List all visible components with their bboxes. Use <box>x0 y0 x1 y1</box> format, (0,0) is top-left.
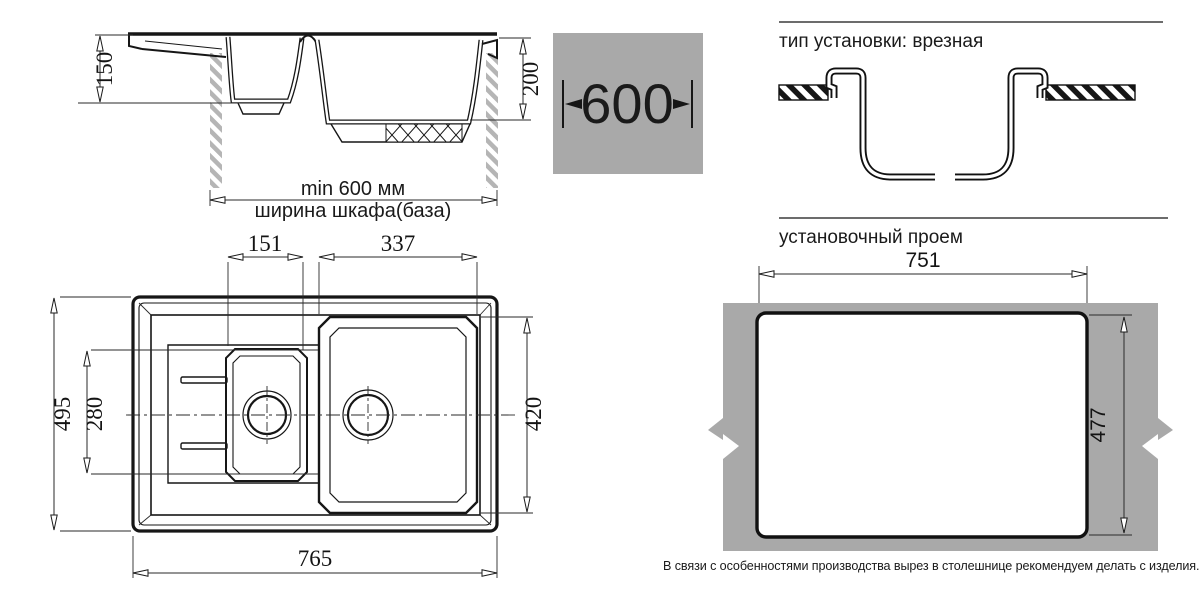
drainer-groove-bottom <box>181 443 227 449</box>
dimension-751: 751 <box>759 249 1087 310</box>
dim-495-label: 495 <box>50 397 75 432</box>
install-type-section: тип установки: врезная <box>779 22 1163 177</box>
dim-280-label: 280 <box>82 397 107 432</box>
cutout-title: установочный проем <box>779 227 963 248</box>
install-type-title: тип установки: врезная <box>779 31 983 52</box>
dim-150-label: 150 <box>92 52 117 87</box>
sink-technical-drawing: 150 200 min 600 мм ширина шкафа(база) 60… <box>0 0 1203 606</box>
bowl-bottom-crosshatch <box>386 124 462 142</box>
break-bump-left <box>708 418 723 440</box>
badge-600-value: 600 <box>580 72 673 135</box>
inset-rim-profile <box>829 71 1045 177</box>
dimension-151: 151 <box>228 231 303 350</box>
dim-151-label: 151 <box>248 231 283 256</box>
production-note: В связи с особенностями производства выр… <box>663 559 1199 573</box>
countertop-left-hatch <box>779 85 828 100</box>
break-bump-right <box>1158 418 1173 440</box>
cabinet-600-badge: 600 <box>553 33 703 174</box>
dimension-765: 765 <box>133 536 497 578</box>
sink-outer-edge <box>133 297 497 531</box>
dim-477-label: 477 <box>1087 407 1110 442</box>
top-view: 151 337 495 280 420 <box>50 231 546 578</box>
dimension-337: 337 <box>319 231 477 314</box>
dim-420-label: 420 <box>521 397 546 432</box>
dimension-280: 280 <box>82 350 318 474</box>
dim-765-label: 765 <box>298 546 333 571</box>
dim-200-label: 200 <box>518 62 543 97</box>
cabinet-wall-right-hatch <box>486 53 498 188</box>
dimension-cabinet-width: min 600 мм ширина шкафа(база) <box>210 178 497 222</box>
cross-section-view: 150 200 min 600 мм ширина шкафа(база) <box>78 34 543 222</box>
countertop-right-hatch <box>1046 85 1135 100</box>
dim-min600-label: min 600 мм <box>301 178 405 200</box>
dim-751-label: 751 <box>905 249 940 272</box>
cutout-opening <box>757 313 1087 537</box>
dim-337-label: 337 <box>381 231 416 256</box>
cabinet-wall-left-hatch <box>210 53 222 188</box>
cabinet-width-caption: ширина шкафа(база) <box>255 200 452 222</box>
drainer-groove-top <box>181 377 227 383</box>
sink-section-profile <box>128 34 497 142</box>
cutout-section: установочный проем 751 477 В связи с осо… <box>663 218 1199 573</box>
